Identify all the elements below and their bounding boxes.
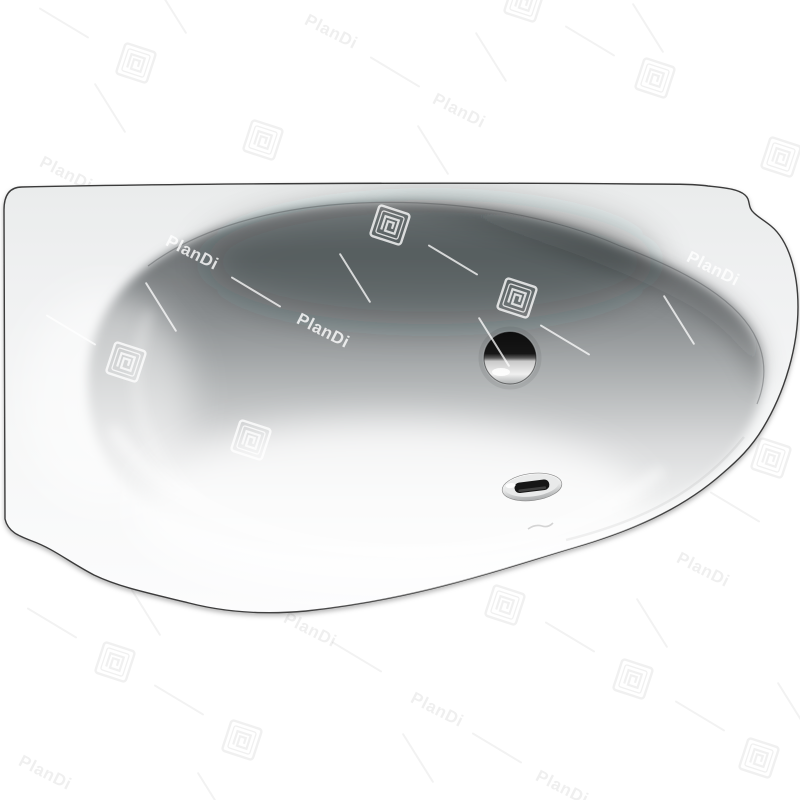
- basin-shadow-blob: [205, 200, 655, 324]
- watermark-line: [675, 700, 726, 732]
- watermark-text: PlanDi: [429, 89, 488, 132]
- watermark-line: [332, 641, 383, 673]
- plandi-logo-icon: [489, 270, 544, 325]
- watermark-layer-foreground: PlanDiPlanDiPlanDi: [0, 0, 800, 800]
- watermark-line: [155, 0, 187, 34]
- watermark-line: [339, 253, 371, 303]
- watermark-line: [565, 25, 616, 57]
- watermark-line: [402, 733, 434, 783]
- watermark-line: [472, 732, 523, 764]
- watermark-line: [428, 244, 479, 276]
- watermark-line: [710, 491, 761, 523]
- watermark-line: [129, 586, 161, 636]
- plandi-logo-icon: [477, 577, 532, 632]
- watermark-text: PlanDi: [673, 548, 732, 591]
- watermark-text: PlanDi: [532, 766, 591, 800]
- drain-hole: [481, 329, 540, 388]
- overflow-fitting: [501, 470, 564, 504]
- watermark-text: PlanDi: [15, 751, 74, 794]
- watermark-line: [478, 317, 510, 367]
- basin-floor-highlight: [135, 420, 645, 596]
- bathtub-illustration: [0, 0, 800, 800]
- tub-outer-shell: [4, 183, 798, 613]
- watermark-text: PlanDi: [162, 231, 221, 274]
- watermark-line: [632, 3, 664, 53]
- watermark-line: [370, 56, 421, 88]
- plandi-logo-icon: [496, 0, 551, 30]
- basin-top-edge: [148, 202, 764, 404]
- plandi-logo-icon: [362, 197, 417, 252]
- plandi-logo-icon: [108, 35, 163, 90]
- plandi-logo-icon: [731, 730, 786, 785]
- basin-water-wedge: [360, 202, 762, 390]
- watermark-line: [475, 32, 507, 82]
- plandi-logo-icon: [235, 112, 290, 167]
- watermark-text: PlanDi: [683, 247, 742, 290]
- watermark-line: [777, 682, 800, 732]
- plandi-logo-icon: [605, 651, 660, 706]
- basin-left-highlight: [21, 290, 191, 506]
- plandi-logo-icon: [743, 430, 798, 485]
- watermark-line: [46, 314, 97, 346]
- watermark-line: [94, 83, 126, 133]
- watermark-line: [154, 684, 205, 716]
- watermark-line: [27, 607, 78, 639]
- watermark-line: [39, 7, 90, 39]
- plandi-logo-icon: [223, 412, 278, 467]
- watermark-line: [197, 772, 229, 800]
- watermark-layer-background: PlanDiPlanDiPlanDiPlanDiPlanDiPlanDiPlan…: [0, 0, 800, 800]
- watermark-text: PlanDi: [407, 688, 466, 731]
- bathtub-photo: [0, 0, 800, 800]
- watermark-line: [145, 282, 177, 332]
- watermark-text: PlanDi: [293, 309, 352, 352]
- basin-ridge-highlight-2: [136, 310, 380, 552]
- plandi-logo-icon: [98, 334, 153, 389]
- basin-ridge-highlight: [112, 428, 662, 552]
- watermark-text: PlanDi: [36, 152, 95, 195]
- plandi-logo-icon: [214, 712, 269, 767]
- watermark-line: [231, 276, 282, 308]
- product-image-canvas: PlanDiPlanDiPlanDiPlanDiPlanDiPlanDiPlan…: [0, 0, 800, 800]
- watermark-line: [663, 295, 695, 345]
- watermark-line: [417, 125, 449, 175]
- watermark-line: [545, 621, 596, 653]
- tub-basin: [88, 202, 764, 555]
- watermark-text: PlanDi: [301, 10, 360, 53]
- rim-step-line: [566, 437, 744, 540]
- watermark-line: [540, 324, 591, 356]
- rim-brand-mark: [528, 523, 553, 529]
- watermark-line: [636, 598, 668, 648]
- plandi-logo-icon: [753, 129, 800, 184]
- plandi-logo-icon: [87, 634, 142, 689]
- watermark-text: PlanDi: [280, 608, 339, 651]
- plandi-logo-icon: [627, 50, 682, 105]
